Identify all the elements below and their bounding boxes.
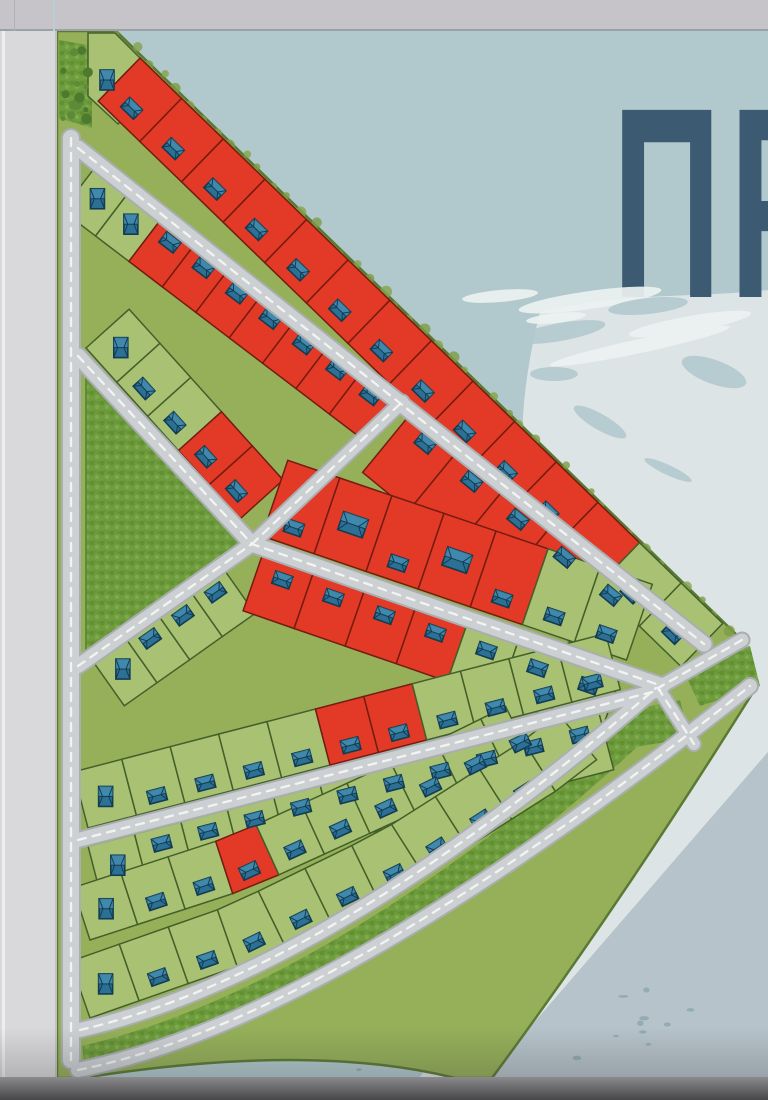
house-icon — [100, 70, 114, 90]
forest-dot — [67, 112, 75, 120]
player-bottom-bar[interactable] — [0, 1077, 768, 1100]
house-icon — [114, 338, 128, 358]
speckle — [643, 987, 649, 992]
forest-dot — [69, 100, 79, 110]
house-icon — [90, 189, 104, 209]
forest-dot — [81, 113, 92, 124]
forest-dot — [74, 81, 80, 87]
forest-dot — [60, 68, 66, 74]
forest-dot — [83, 67, 93, 77]
forest-dot — [77, 46, 86, 55]
speckle — [664, 1023, 671, 1027]
left-panel — [0, 31, 57, 1077]
hedge-dot — [724, 625, 735, 636]
master-plan-scene: ПР — [0, 0, 768, 1100]
top-bar-divider-1 — [14, 0, 15, 31]
top-bar — [0, 0, 768, 31]
house-icon — [111, 855, 125, 875]
speckle — [687, 1008, 695, 1012]
hedge-dot — [133, 42, 142, 51]
house-icon — [99, 786, 113, 806]
speckle — [618, 995, 628, 998]
brush-stroke-blue — [530, 367, 578, 381]
hedge-dot — [162, 70, 169, 77]
house-icon — [116, 659, 130, 679]
speckle — [356, 1068, 362, 1071]
forest-dot — [83, 107, 88, 112]
hedge-dot — [562, 461, 570, 469]
speckle — [639, 1016, 649, 1020]
forest-dot — [84, 84, 89, 89]
speckle — [637, 1021, 643, 1026]
speckle — [645, 1043, 651, 1046]
left-panel-highlight — [2, 31, 5, 1077]
forest-dot — [60, 116, 65, 121]
speckle — [639, 1030, 647, 1033]
top-bar-divider-2 — [53, 0, 55, 31]
house-icon — [99, 899, 113, 919]
hedge-dot — [244, 151, 251, 158]
video-frame: ПР — [0, 0, 768, 1100]
speckle — [613, 1035, 619, 1037]
master-plan-map: ПР — [0, 0, 768, 1100]
house-icon — [124, 214, 138, 234]
forest-dot — [70, 48, 78, 56]
speckle — [572, 1056, 581, 1060]
forest-dot — [62, 90, 70, 98]
house-icon — [99, 974, 113, 994]
